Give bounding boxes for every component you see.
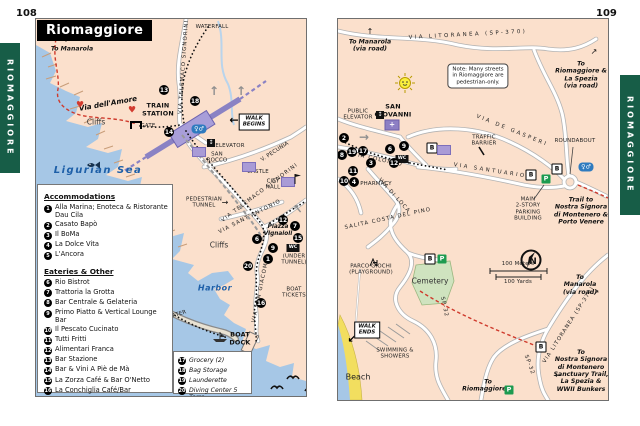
map-marker-8: 8 bbox=[337, 150, 347, 160]
legend-item-label: Tutti Fritti bbox=[55, 336, 87, 344]
legend-heading-accommodations: Accommodations bbox=[44, 192, 169, 201]
legend-eateries-list: 6Rio Bistrot7Trattoria la Grotta8Bar Cen… bbox=[44, 279, 169, 395]
map-marker-11: 11 bbox=[348, 166, 358, 176]
svg-text:N: N bbox=[529, 257, 537, 267]
parking-icon: P bbox=[505, 386, 514, 395]
walk-arrow-dl-icon: ↙ bbox=[347, 334, 356, 345]
map-marker-17: 17 bbox=[358, 146, 368, 156]
map-marker-14: 14 bbox=[164, 127, 174, 137]
legend-item-number: 4 bbox=[44, 242, 52, 250]
legend-item-number: 8 bbox=[44, 299, 52, 307]
legend-item-label: Bag Storage bbox=[189, 367, 227, 374]
legend-item-label: Bar Centrale & Gelateria bbox=[55, 299, 137, 307]
side-tab-label: RIOMAGGIORE bbox=[6, 59, 15, 157]
bus-icon: B bbox=[552, 164, 563, 175]
bldg-icon bbox=[437, 145, 451, 155]
bus-icon: B bbox=[536, 342, 547, 353]
map-marker-6: 6 bbox=[252, 234, 262, 244]
gray-up-icon: ↑ bbox=[209, 85, 219, 97]
legend-item: 12Alimentari Franca bbox=[44, 346, 169, 355]
map-marker-4: 4 bbox=[349, 177, 359, 187]
wc-blue-icon: ♀♂ bbox=[192, 125, 207, 134]
guidebook-spread: { "doc": { "left_page_number": "108", "r… bbox=[0, 0, 640, 426]
dir-ur-icon: ↗ bbox=[591, 48, 598, 56]
legend-item-number: 15 bbox=[44, 377, 52, 385]
map-marker-2: 2 bbox=[339, 133, 349, 143]
gray-right-icon: → bbox=[359, 131, 369, 143]
walk-arrow-left-icon: ← bbox=[229, 115, 238, 126]
legend-item-label: La Zorza Café & Bar O'Netto bbox=[55, 377, 150, 385]
legend-item: 15La Zorza Café & Bar O'Netto bbox=[44, 377, 169, 386]
legend-item-label: La Dolce Vita bbox=[55, 241, 99, 249]
legend-item-number: 2 bbox=[44, 222, 52, 230]
gray-up-icon: ↑ bbox=[236, 85, 246, 97]
legend-item-label: Il BoMa bbox=[55, 231, 80, 239]
legend-item: 2Casato Bapò bbox=[44, 221, 169, 230]
legend-item-number: 3 bbox=[44, 232, 52, 240]
legend-item-number: 13 bbox=[44, 357, 52, 365]
legend-item-number: 12 bbox=[44, 347, 52, 355]
legend-item-number: 14 bbox=[44, 367, 52, 375]
heart-icon: ♥ bbox=[128, 107, 136, 116]
dir-up-icon: ↑ bbox=[367, 28, 374, 36]
legend-item: 20Diving Center 5 Terre bbox=[178, 387, 249, 397]
legend-item-number: 17 bbox=[178, 357, 186, 365]
legend-item-label: Casato Bapò bbox=[55, 221, 97, 229]
heart-icon: ♥ bbox=[76, 102, 84, 111]
legend-item-label: Grocery (2) bbox=[189, 357, 224, 364]
bus-icon: B bbox=[425, 254, 436, 265]
legend-heading-eateries: Eateries & Other bbox=[44, 267, 169, 276]
church-icon: + bbox=[385, 120, 400, 131]
elev-icon: ↕ bbox=[207, 139, 215, 147]
wc-blue-icon: ♀♂ bbox=[579, 163, 594, 172]
side-tab-left: RIOMAGGIORE bbox=[0, 43, 20, 173]
bldg-icon bbox=[281, 177, 295, 187]
legend-item: 3Il BoMa bbox=[44, 231, 169, 240]
map-title: Riomaggiore bbox=[37, 20, 152, 41]
dir-right-icon: → bbox=[222, 199, 229, 207]
map-marker-20: 20 bbox=[243, 261, 253, 271]
legend-item: 19Launderette bbox=[178, 377, 249, 386]
legend-item-label: Il Pescato Cucinato bbox=[55, 326, 118, 334]
side-tab-right: RIOMAGGIORE bbox=[620, 75, 640, 215]
legend-item: 13Bar Stazione bbox=[44, 356, 169, 365]
legend-item-label: Launderette bbox=[189, 377, 227, 384]
legend-item-label: L'Ancora bbox=[55, 251, 84, 259]
dir-ur-icon: ↗ bbox=[593, 289, 600, 297]
map-marker-12: 12 bbox=[389, 158, 399, 168]
legend-item-number: 9 bbox=[44, 310, 52, 318]
riomaggiore-town-map: Riomaggiore Accommodations 1Alla Marina;… bbox=[35, 18, 307, 397]
legend-item-label: Trattoria la Grotta bbox=[55, 289, 114, 297]
legend-item: 14Bar & Vini A Piè de Mà bbox=[44, 366, 169, 375]
legend-accommodations-list: 1Alla Marina; Enoteca & Ristorante Dau C… bbox=[44, 204, 169, 260]
legend-item-label: Primo Piatto & Vertical Lounge Bar bbox=[55, 309, 169, 324]
parking-icon: P bbox=[438, 255, 447, 264]
bus-icon: B bbox=[427, 143, 438, 154]
map-marker-19: 19 bbox=[347, 147, 357, 157]
legend-item-number: 6 bbox=[44, 279, 52, 287]
legend-item-label: Rio Bistrot bbox=[55, 279, 90, 287]
legend-item: 7Trattoria la Grotta bbox=[44, 289, 169, 298]
legend-services-list: 17Grocery (2)18Bag Storage19Launderette2… bbox=[178, 357, 249, 397]
legend-item: 6Rio Bistrot bbox=[44, 279, 169, 288]
elev-icon: ↕ bbox=[376, 111, 384, 119]
legend-item-number: 7 bbox=[44, 289, 52, 297]
legend-item-label: Bar Stazione bbox=[55, 356, 97, 364]
legend-item-label: La Conchiglia Café/Bar bbox=[55, 387, 131, 395]
map-marker-10: 10 bbox=[339, 176, 349, 186]
legend-item-label: Bar & Vini A Piè de Mà bbox=[55, 366, 129, 374]
parking-icon: P bbox=[542, 175, 551, 184]
legend-item: 8Bar Centrale & Gelateria bbox=[44, 299, 169, 308]
wc-black-icon: WC bbox=[287, 244, 300, 252]
side-tab-label: RIOMAGGIORE bbox=[626, 96, 635, 194]
legend-box-services: 17Grocery (2)18Bag Storage19Launderette2… bbox=[173, 351, 252, 394]
legend-item-number: 19 bbox=[178, 377, 186, 385]
riomaggiore-area-map: To Manarola (via road)VIA LITORANEA (SP-… bbox=[337, 18, 609, 401]
map-marker-3: 3 bbox=[366, 158, 376, 168]
map-marker-16: 16 bbox=[256, 298, 266, 308]
page-number-left: 108 bbox=[16, 8, 37, 19]
legend-item: 17Grocery (2) bbox=[178, 357, 249, 366]
legend-item: 16La Conchiglia Café/Bar bbox=[44, 387, 169, 396]
map-marker-9: 9 bbox=[399, 141, 409, 151]
legend-item-number: 20 bbox=[178, 387, 186, 395]
legend-item: 5L'Ancora bbox=[44, 251, 169, 260]
legend-item: 10Il Pescato Cucinato bbox=[44, 326, 169, 335]
map-marker-12: 12 bbox=[278, 215, 288, 225]
legend-box: Accommodations 1Alla Marina; Enoteca & R… bbox=[37, 184, 173, 393]
legend-item-label: Alimentari Franca bbox=[55, 346, 114, 354]
gate-icon bbox=[130, 121, 142, 129]
map-marker-9: 9 bbox=[268, 243, 278, 253]
legend-item: 18Bag Storage bbox=[178, 367, 249, 376]
legend-item-number: 16 bbox=[44, 387, 52, 395]
legend-item-label: Alla Marina; Enoteca & Ristorante Dau Ci… bbox=[55, 204, 169, 219]
legend-item-number: 11 bbox=[44, 337, 52, 345]
bldg-icon bbox=[192, 147, 206, 157]
legend-item: 4La Dolce Vita bbox=[44, 241, 169, 250]
map-marker-18: 18 bbox=[190, 96, 200, 106]
map-marker-6: 6 bbox=[385, 144, 395, 154]
legend-item: 1Alla Marina; Enoteca & Ristorante Dau C… bbox=[44, 204, 169, 219]
dir-left-icon: ← bbox=[555, 372, 562, 380]
legend-item: 9Primo Piatto & Vertical Lounge Bar bbox=[44, 309, 169, 324]
legend-item-number: 10 bbox=[44, 327, 52, 335]
legend-item-number: 1 bbox=[44, 205, 52, 213]
bus-icon: B bbox=[526, 170, 537, 181]
legend-item-label: Diving Center 5 Terre bbox=[189, 387, 249, 397]
map-marker-1: 1 bbox=[263, 254, 273, 264]
map-marker-13: 13 bbox=[159, 85, 169, 95]
legend-item-number: 5 bbox=[44, 252, 52, 260]
legend-item: 11Tutti Fritti bbox=[44, 336, 169, 345]
map-marker-7: 7 bbox=[290, 221, 300, 231]
area-map-base-layer bbox=[338, 19, 608, 400]
bldg-icon bbox=[242, 162, 256, 172]
map-marker-15: 15 bbox=[293, 233, 303, 243]
legend-item-number: 18 bbox=[178, 367, 186, 375]
